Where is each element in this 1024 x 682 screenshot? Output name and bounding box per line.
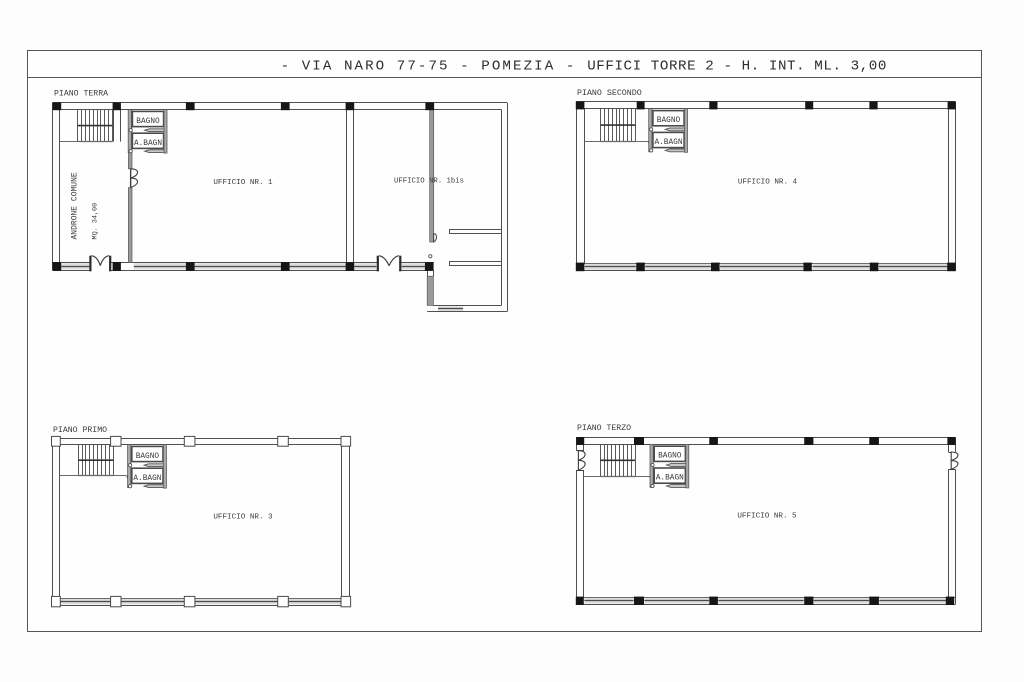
svg-text:UFFICIO NR. 3: UFFICIO NR. 3 xyxy=(213,514,273,522)
svg-text:MQ. 34,00: MQ. 34,00 xyxy=(92,203,100,240)
svg-text:BAGNO: BAGNO xyxy=(658,453,682,461)
svg-text:BAGNO: BAGNO xyxy=(136,118,160,126)
svg-text:A.BAGN: A.BAGN xyxy=(133,475,161,483)
svg-text:PIANO PRIMO: PIANO PRIMO xyxy=(53,426,107,435)
svg-text:UFFICI TORRE 2 - H. INT. ML. 3: UFFICI TORRE 2 - H. INT. ML. 3,00 xyxy=(587,59,887,75)
svg-text:PIANO TERRA: PIANO TERRA xyxy=(54,90,108,99)
svg-text:A.BAGN: A.BAGN xyxy=(656,475,684,483)
svg-text:A.BAGN: A.BAGN xyxy=(134,140,162,148)
svg-text:UFFICIO NR. 1: UFFICIO NR. 1 xyxy=(213,179,273,187)
svg-text:BAGNO: BAGNO xyxy=(136,453,160,461)
svg-text:UFFICIO NR. 5: UFFICIO NR. 5 xyxy=(737,513,797,521)
svg-text:PIANO TERZO: PIANO TERZO xyxy=(577,424,631,433)
svg-text:A.BAGN: A.BAGN xyxy=(654,139,682,147)
svg-text:UFFICIO NR. 1bis: UFFICIO NR. 1bis xyxy=(394,177,464,185)
svg-text:ANDRONE COMUNE: ANDRONE COMUNE xyxy=(71,172,80,239)
svg-text:BAGNO: BAGNO xyxy=(657,117,681,125)
svg-text:- VIA NARO 77-75 - POMEZIA -: - VIA NARO 77-75 - POMEZIA - xyxy=(281,59,587,75)
svg-text:UFFICIO NR. 4: UFFICIO NR. 4 xyxy=(738,179,798,187)
svg-text:PIANO SECONDO: PIANO SECONDO xyxy=(577,89,642,98)
